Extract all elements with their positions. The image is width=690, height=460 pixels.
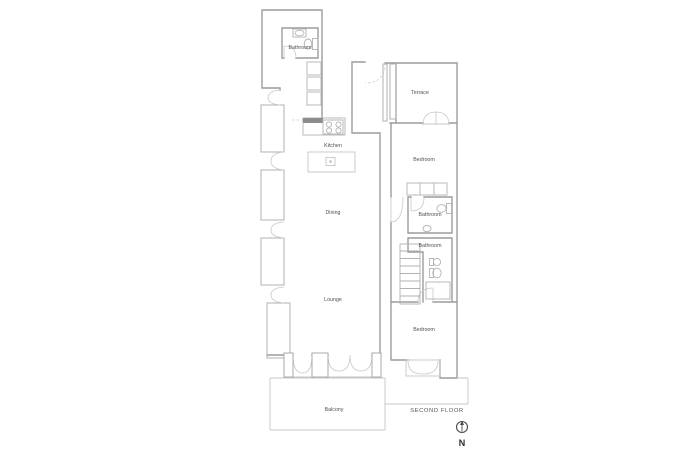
room-label-bathroom-middle: Bathroom [419,212,443,218]
north-arrow-icon: N [457,421,468,448]
bathroom-lower-sink-icon [430,258,441,265]
room-label-kitchen: Kitchen [324,143,342,149]
shower-tray [426,282,450,299]
kitchen-cabinets [307,62,321,105]
floor-plan-page: Bathroom Terrace Kitchen Bedroom Dining … [0,0,690,460]
terrace-planter [383,64,396,121]
kitchen-counter [303,118,345,135]
top-bathroom-sink-icon [293,29,306,37]
north-label: N [459,438,466,448]
dashed-lines [292,63,385,120]
bathroom-middle-sink-icon [423,225,431,231]
room-label-terrace: Terrace [411,90,429,96]
room-label-bedroom-north: Bedroom [413,157,435,163]
room-label-balcony: Balcony [325,407,344,413]
wardrobe [407,183,447,195]
room-label-lounge: Lounge [324,297,342,303]
room-label-bathroom-lower: Bathroom [419,243,443,249]
balcony-outline [270,124,468,430]
room-label-bathroom-top: Bathroom [289,45,313,51]
stairs [400,244,420,304]
floor-title: SECOND FLOOR [410,408,464,414]
window-bays [261,105,290,358]
door-piers [284,353,381,377]
walls [262,10,457,378]
room-label-dining: Dining [325,210,340,216]
floor-plan-drawing: Bathroom Terrace Kitchen Bedroom Dining … [0,0,690,460]
stove-icon [323,120,343,134]
kitchen-island [308,152,355,172]
bathroom-lower-toilet-icon [430,268,442,278]
counter-hatch [303,118,323,123]
room-label-bedroom-south: Bedroom [413,327,435,333]
